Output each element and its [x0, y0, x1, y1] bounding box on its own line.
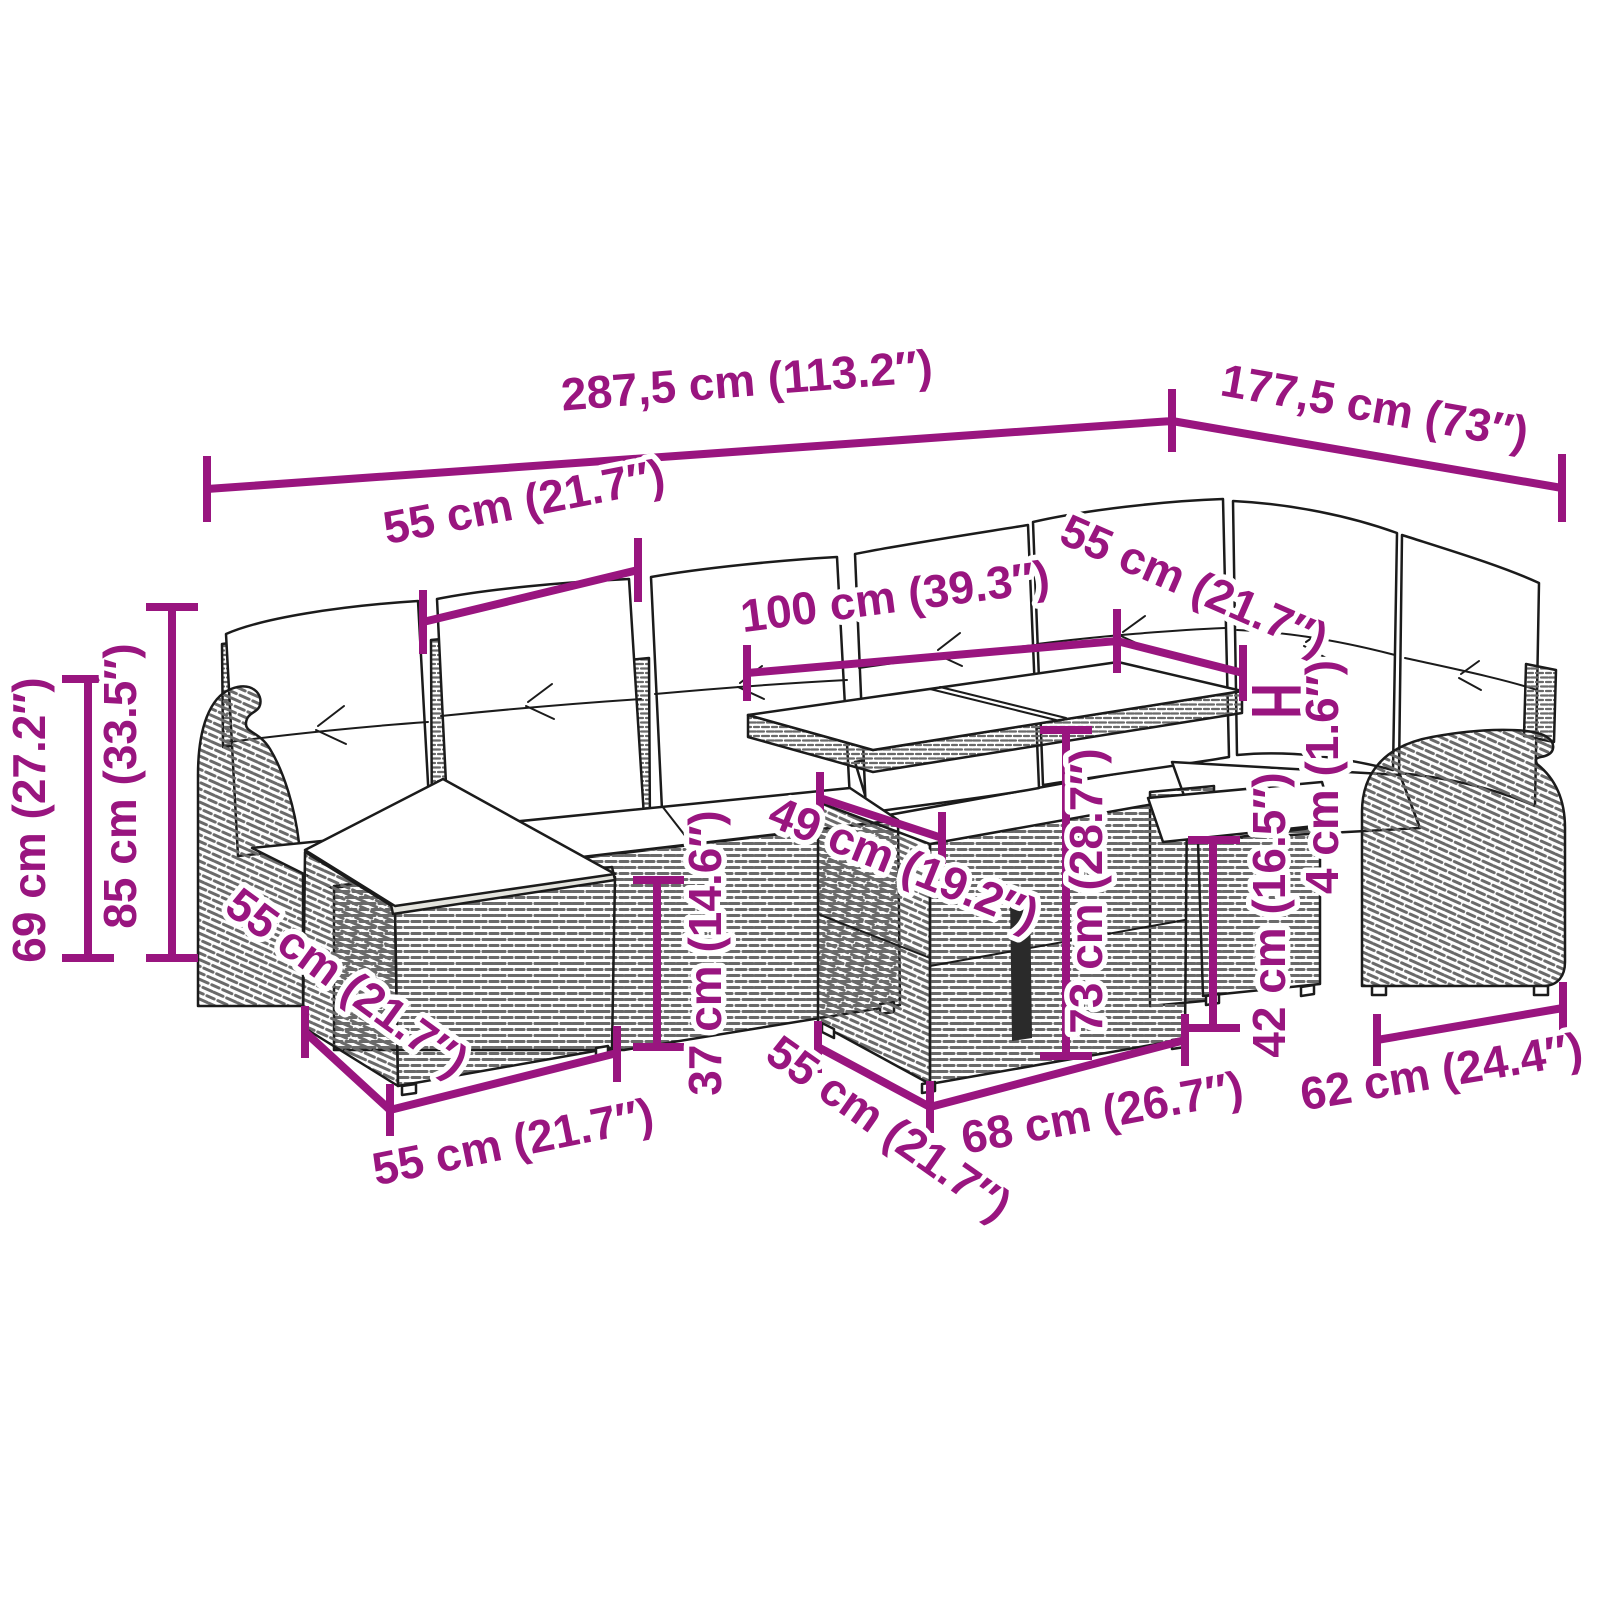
ottoman-foot [402, 1084, 416, 1095]
dim-label-total-height: 85 cm (33.5″) [94, 643, 146, 928]
product-dimension-diagram: 287,5 cm (113.2″) 177,5 cm (73″) 55 cm (… [0, 0, 1600, 1600]
armchair-foot [1372, 986, 1386, 995]
dim-label-overall-width: 287,5 cm (113.2″) [559, 340, 934, 421]
dim-overall-depth: 177,5 cm (73″) [1172, 354, 1562, 522]
dim-total-height: 85 cm (33.5″) [94, 607, 198, 958]
stool-foot [1301, 985, 1314, 996]
dim-label-overall-depth: 177,5 cm (73″) [1217, 354, 1532, 459]
table-base-front-face [930, 798, 1187, 1084]
dim-label-ottoman-height: 37 cm (14.6″) [679, 810, 731, 1095]
dim-overall-width: 287,5 cm (113.2″) [207, 340, 1172, 522]
right-armrest [1362, 730, 1565, 986]
dim-label-seat-back-height: 69 cm (27.2″) [3, 677, 55, 962]
dim-armchair-width: 62 cm (24.4″) [1296, 982, 1586, 1120]
dim-label-armchair-width: 62 cm (24.4″) [1296, 1022, 1586, 1120]
diagram-canvas: 287,5 cm (113.2″) 177,5 cm (73″) 55 cm (… [0, 0, 1600, 1600]
armchair-foot [1534, 986, 1548, 995]
dim-label-table-height: 73 cm (28.7″) [1060, 748, 1112, 1033]
dim-label-table-base-width: 68 cm (26.7″) [957, 1061, 1247, 1164]
dim-label-tabletop-thickness: 4 cm (1.6″) [1296, 660, 1348, 894]
dim-label-stool-height: 42 cm (16.5″) [1243, 772, 1295, 1057]
